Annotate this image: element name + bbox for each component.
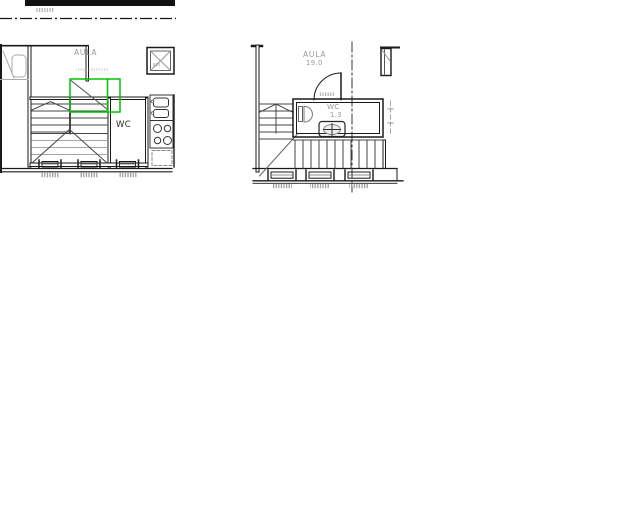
wall xyxy=(108,98,111,167)
stair-flight-diagonal xyxy=(260,135,298,177)
wall xyxy=(383,140,386,169)
burner-icon xyxy=(154,125,162,133)
wall-section-strip xyxy=(0,0,176,19)
appliance-dashed-icon xyxy=(152,151,172,166)
corner-fixture-icon xyxy=(0,51,28,80)
plan-linework xyxy=(0,0,640,512)
faint-annotation xyxy=(76,68,108,71)
right-room-area: 19.0 xyxy=(306,60,323,67)
kitchen-fixtures xyxy=(150,95,173,166)
right-plan xyxy=(252,42,403,192)
burner-icon xyxy=(164,125,170,131)
sink-basin-icon xyxy=(154,110,169,118)
door-swing xyxy=(314,73,341,100)
footing-detail xyxy=(268,170,296,188)
wall xyxy=(28,46,31,167)
right-wc-label: WC xyxy=(327,103,340,110)
stair-flight-diagonal xyxy=(33,130,70,163)
wall xyxy=(30,163,148,167)
green-highlight-rect xyxy=(70,79,120,112)
footing-details xyxy=(268,170,373,188)
window-symbol xyxy=(381,48,399,76)
stair xyxy=(259,104,297,176)
footing-detail xyxy=(306,170,334,188)
left-wc-label: WC xyxy=(116,121,131,130)
tiny-annotation-hatch xyxy=(319,93,334,97)
tread-band xyxy=(293,140,383,168)
washbasin-icon xyxy=(299,107,303,122)
sink-basin-icon xyxy=(154,98,169,107)
wall xyxy=(256,45,259,172)
stair-flight-diagonal xyxy=(70,130,107,163)
floor-plan-canvas: AULA WC AULA 19.0 WC 1.3 xyxy=(0,0,640,512)
washbasin-bowl-icon xyxy=(304,107,312,123)
left-room-label: AULA xyxy=(74,49,97,57)
tiny-annotation-hatch xyxy=(153,63,160,67)
burner-icon xyxy=(164,137,172,145)
right-room-label: AULA xyxy=(303,51,326,59)
wall xyxy=(30,97,148,100)
footing-detail xyxy=(345,170,373,188)
tap-icon xyxy=(151,100,154,103)
stair-direction-arrow xyxy=(32,102,69,111)
window-symbol xyxy=(147,48,174,75)
right-wc-area: 1.3 xyxy=(330,112,342,119)
landing-diagonal xyxy=(71,81,108,110)
dimension-marks xyxy=(388,101,394,136)
toilet-icon xyxy=(319,122,345,137)
tiny-annotation-hatch xyxy=(36,8,54,12)
green-highlight xyxy=(70,79,120,112)
tap-icon xyxy=(151,112,154,115)
fixture-basin xyxy=(12,55,26,77)
burner-icon xyxy=(154,137,160,143)
left-plan xyxy=(0,45,174,177)
wall-section-bar xyxy=(25,0,175,6)
wall xyxy=(146,98,149,167)
